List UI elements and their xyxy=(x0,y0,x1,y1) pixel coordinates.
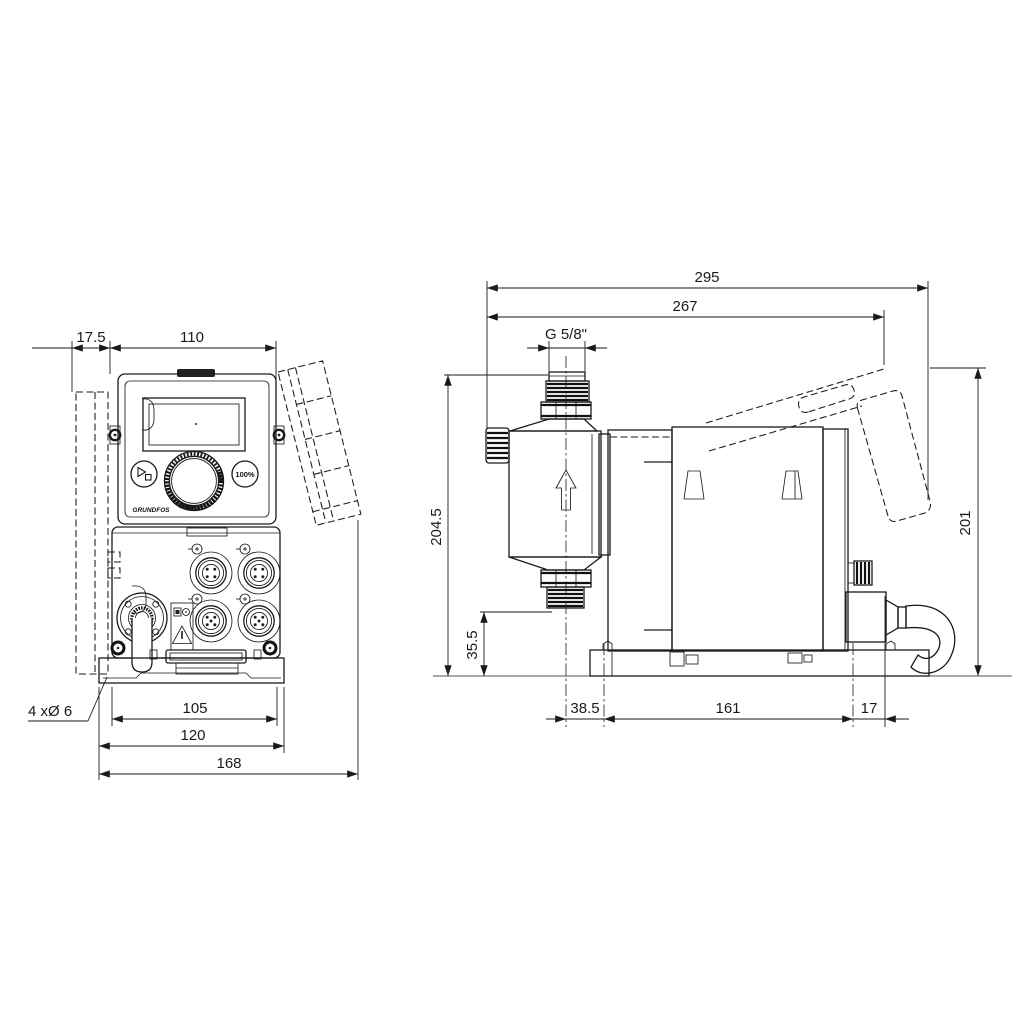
connector-bottom-right[interactable] xyxy=(238,600,280,642)
wall-bracket-hidden-side xyxy=(706,369,930,521)
side-vertical-dimensions: 204.5 35.5 201 xyxy=(428,368,986,676)
dim-161: 161 xyxy=(715,700,740,717)
housing-screw-right xyxy=(264,642,276,654)
top-thread xyxy=(546,381,589,402)
clip-front xyxy=(684,471,704,499)
dim-thread-g58: G 5/8" xyxy=(545,326,587,343)
dim-width-110: 110 xyxy=(180,329,204,346)
baseplate-front xyxy=(99,658,284,683)
dim-depth-267: 267 xyxy=(672,298,697,315)
housing-screw-left xyxy=(112,642,124,654)
dim-plate-width-120: 120 xyxy=(180,727,205,744)
front-view: 17.5 110 xyxy=(28,329,361,780)
start-stop-button[interactable] xyxy=(131,461,157,487)
connector-bottom-left[interactable] xyxy=(190,600,232,642)
play-stop-icon xyxy=(138,468,151,481)
connection-housing xyxy=(112,527,280,674)
brand-logo: GRUNDFOS xyxy=(132,507,170,514)
bottom-thread xyxy=(547,587,584,608)
dim-hole-spacing-105: 105 xyxy=(182,700,207,717)
cable-gland-rear xyxy=(846,592,955,673)
m12-connectors xyxy=(188,544,280,642)
connector-top-left[interactable] xyxy=(190,552,232,594)
connector-id-icons xyxy=(188,544,250,604)
mains-cable xyxy=(906,605,955,673)
mounting-holes-callout: 4 xØ 6 xyxy=(28,703,72,720)
dosing-head xyxy=(486,356,610,727)
connector-top-right[interactable] xyxy=(238,552,280,594)
clip-rear xyxy=(782,471,802,499)
rear-stud xyxy=(848,561,872,585)
hundred-percent-button[interactable]: 100% xyxy=(232,461,258,487)
hundred-percent-label: 100% xyxy=(235,470,255,479)
power-cable xyxy=(132,618,152,672)
side-bottom-dimensions: 38.5 161 17 xyxy=(546,596,909,727)
dim-overall-width-168: 168 xyxy=(216,755,241,772)
dim-bracket-depth: 17.5 xyxy=(76,329,105,346)
side-view: 295 267 G 5/8" 204.5 35.5 201 xyxy=(428,269,1012,727)
baseplate-side xyxy=(590,641,929,676)
dim-overall-depth-295: 295 xyxy=(694,269,719,286)
dim-height-204-5: 204.5 xyxy=(428,508,445,546)
click-wheel[interactable] xyxy=(165,452,224,511)
display xyxy=(143,398,245,451)
pump-dimensional-drawing: 17.5 110 xyxy=(0,0,1024,1024)
drive-housing xyxy=(608,427,955,673)
wall-bracket-hidden-rotated xyxy=(278,361,361,525)
dim-38-5: 38.5 xyxy=(570,700,599,717)
dim-valve-height-35-5: 35.5 xyxy=(464,630,481,659)
warning-label xyxy=(171,603,193,650)
dim-17: 17 xyxy=(861,700,878,717)
priming-knob xyxy=(486,428,509,463)
bottom-clamp xyxy=(150,650,261,674)
cable-gland xyxy=(117,593,167,672)
technical-drawing-page: 17.5 110 xyxy=(0,0,1024,1024)
dim-bracket-height-201: 201 xyxy=(957,510,974,535)
control-panel: 100% GRUNDFOS xyxy=(110,369,284,524)
panel-top-tab xyxy=(177,369,215,377)
